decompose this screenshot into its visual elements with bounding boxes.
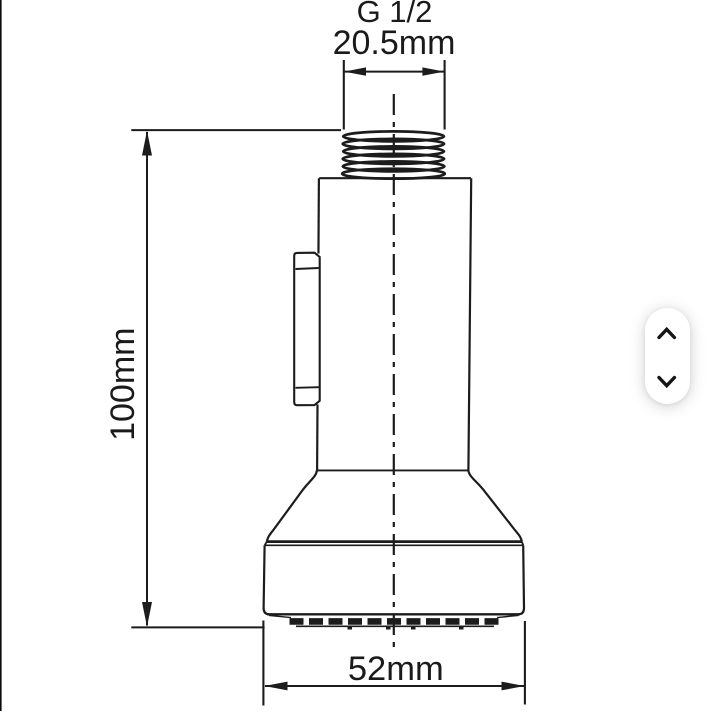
svg-text:20.5mm: 20.5mm bbox=[333, 24, 456, 62]
svg-text:100mm: 100mm bbox=[104, 328, 142, 441]
svg-text:52mm: 52mm bbox=[348, 650, 444, 688]
